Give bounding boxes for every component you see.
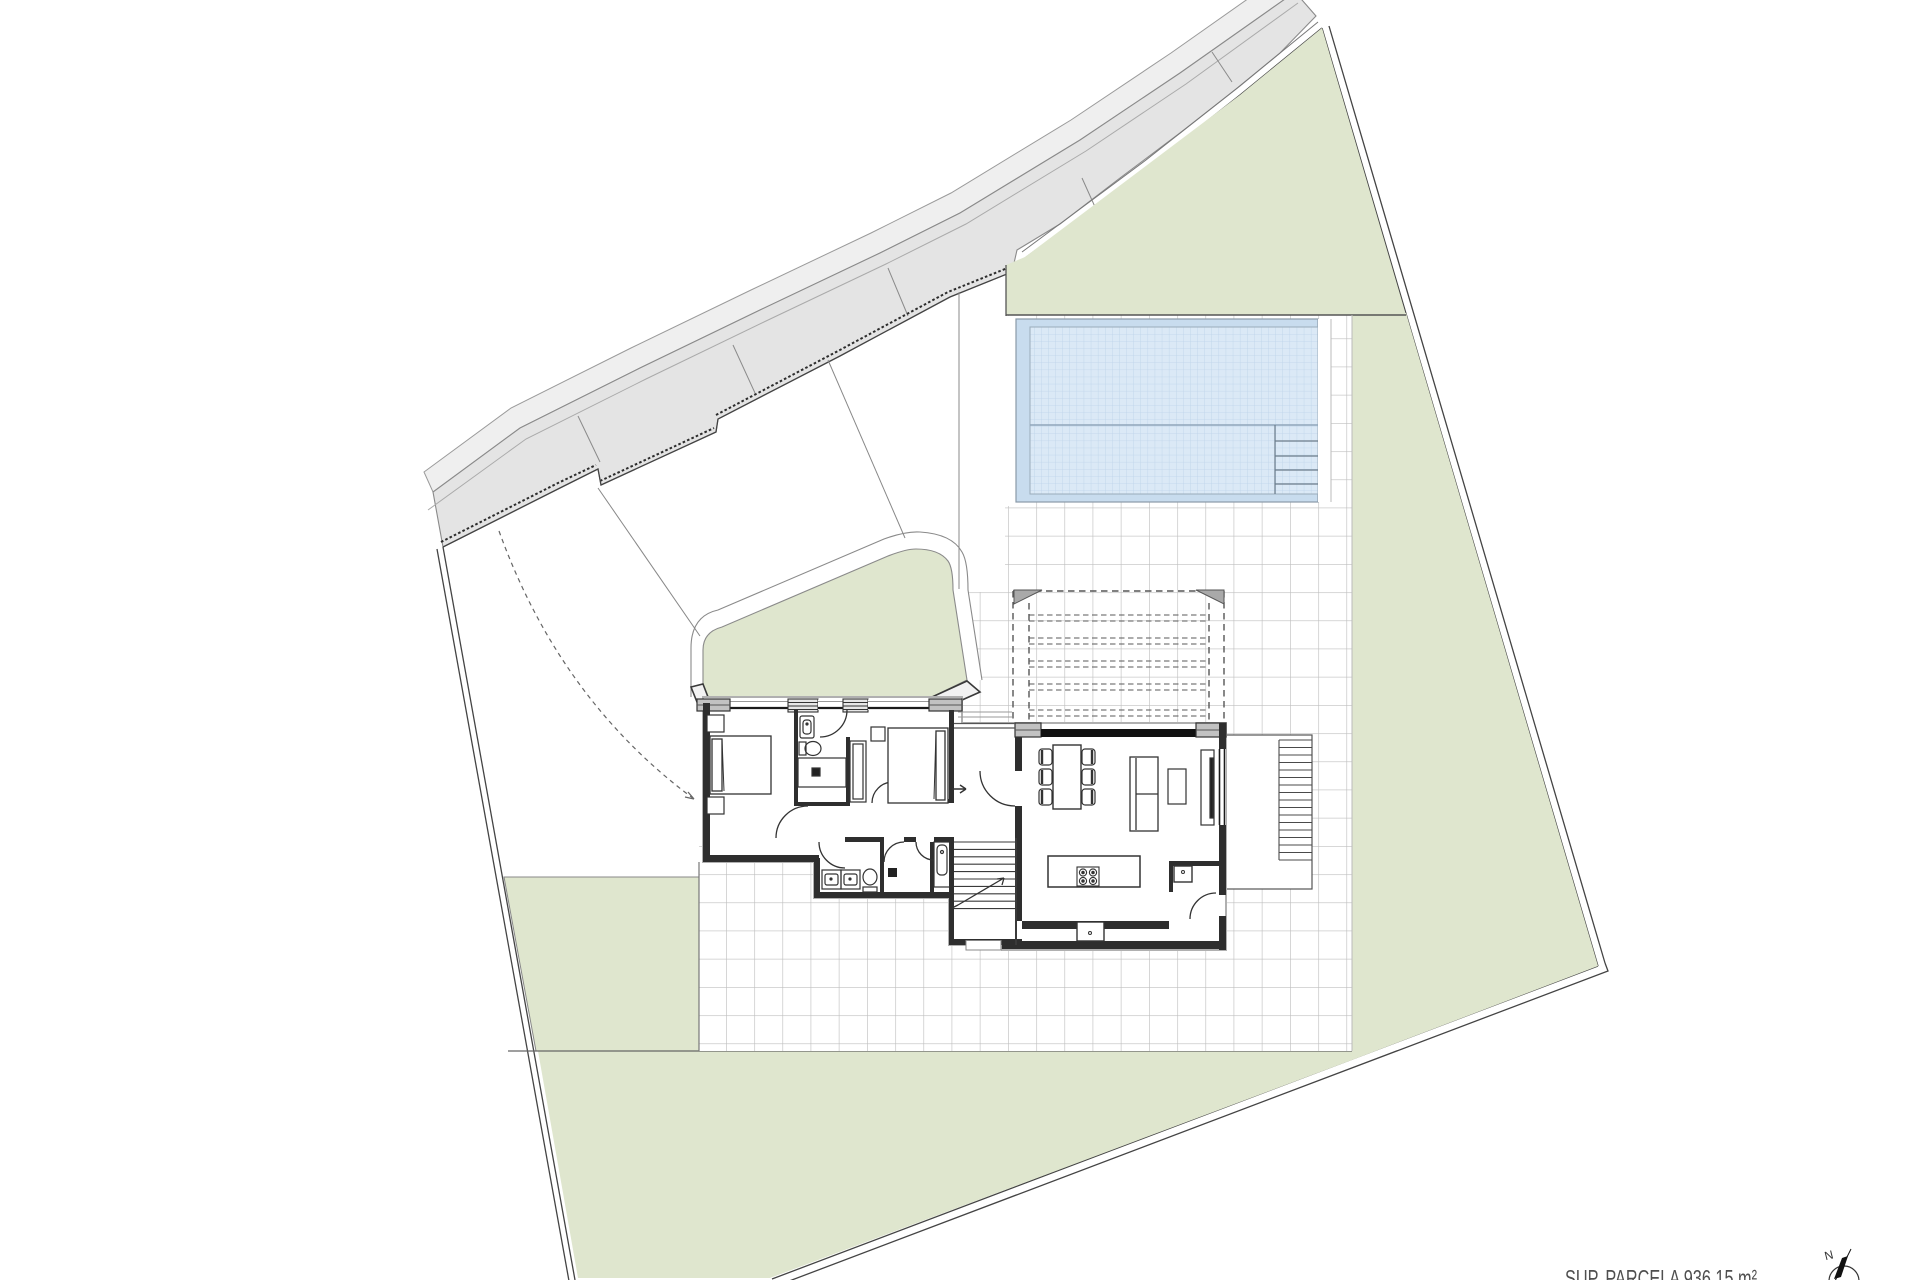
svg-text:SUP. PARCELA 936,15 m²: SUP. PARCELA 936,15 m² (1565, 1265, 1757, 1280)
